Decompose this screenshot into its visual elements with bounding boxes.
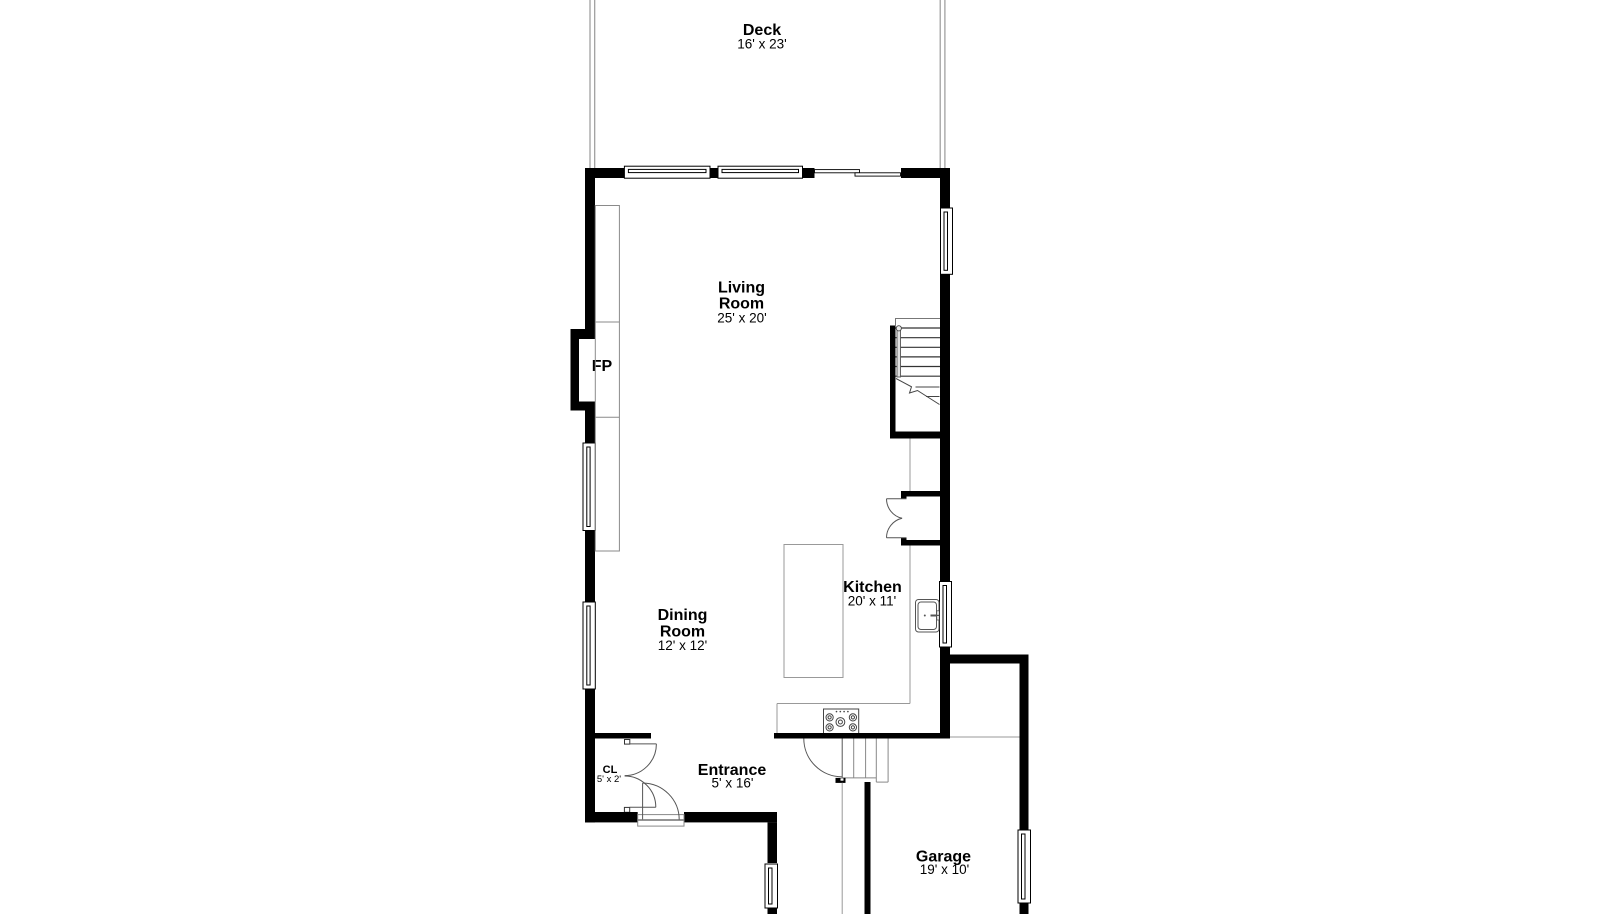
svg-text:25' x 20': 25' x 20' xyxy=(717,311,766,326)
svg-text:5' x 2': 5' x 2' xyxy=(597,774,621,785)
svg-text:Living: Living xyxy=(718,280,765,297)
svg-text:Dining: Dining xyxy=(658,607,708,624)
svg-text:20' x 11': 20' x 11' xyxy=(848,594,896,609)
svg-text:12' x 12': 12' x 12' xyxy=(658,638,707,653)
svg-text:5' x 16': 5' x 16' xyxy=(712,776,754,791)
svg-text:19' x 10': 19' x 10' xyxy=(920,862,969,877)
svg-text:16' x 23': 16' x 23' xyxy=(737,37,786,52)
